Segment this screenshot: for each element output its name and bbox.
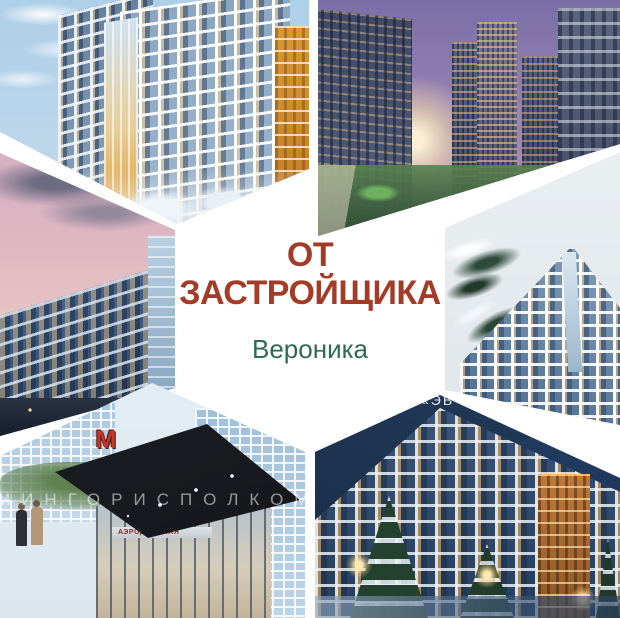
snow-ground xyxy=(315,596,620,618)
tower-two xyxy=(477,22,517,217)
hex-collage-canvas: АЭРОДРОМНАЯ М МИНГОРИСПОЛКОМ «ЭВ ОТ ЗАСТ… xyxy=(0,0,620,618)
pedestrian-body xyxy=(31,507,43,545)
street-lamp-glow xyxy=(474,562,500,588)
page-title-line-1: ОТ xyxy=(160,236,460,274)
watermark-mingorispolkom: МИНГОРИСПОЛКОМ xyxy=(0,490,316,510)
pedestrian-body xyxy=(16,510,27,546)
street-lamp-glow xyxy=(346,552,372,578)
metro-logo-icon: М xyxy=(92,426,120,454)
page-subtitle: Вероника xyxy=(160,334,460,365)
center-hexagon-text: ОТ ЗАСТРОЙЩИКА Вероника xyxy=(160,236,460,365)
watermark-everest-partial: «ЭВ xyxy=(421,392,454,408)
page-title-line-2: ЗАСТРОЙЩИКА xyxy=(160,274,460,312)
